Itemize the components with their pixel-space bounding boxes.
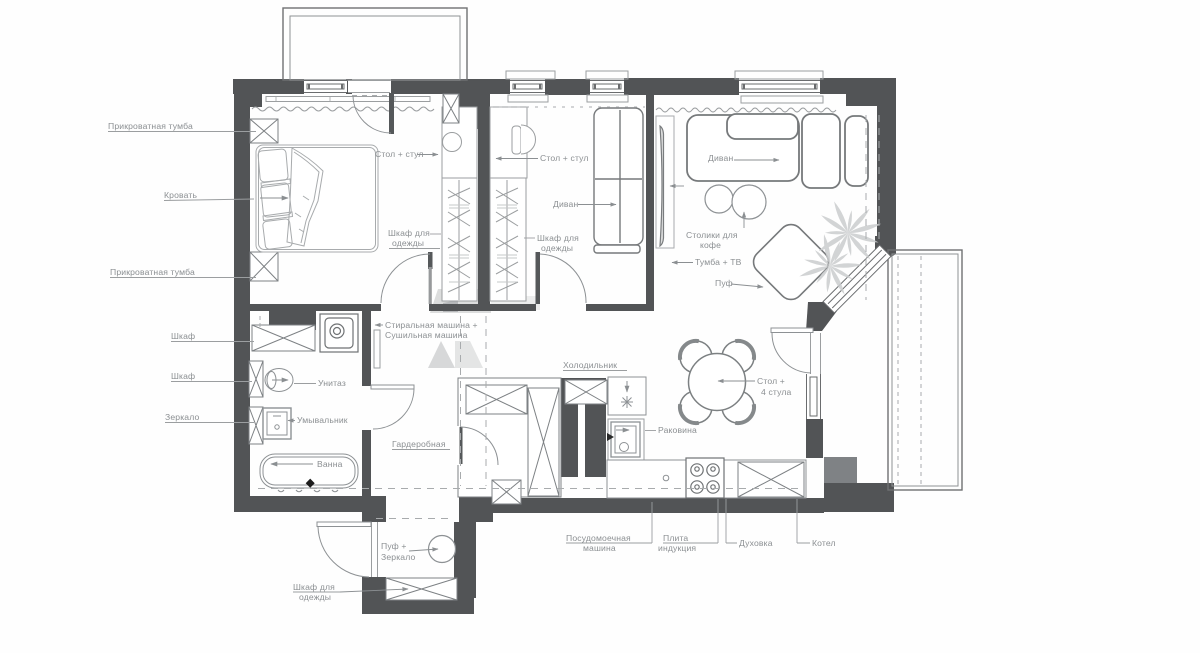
svg-text:индукция: индукция	[658, 543, 696, 553]
svg-text:Сушильная машина: Сушильная машина	[385, 330, 468, 340]
svg-text:Гардеробная: Гардеробная	[392, 439, 446, 449]
svg-text:кофе: кофе	[700, 240, 721, 250]
svg-text:Ванна: Ванна	[317, 459, 343, 469]
svg-text:Зеркало: Зеркало	[381, 552, 415, 562]
svg-text:Прикроватная тумба: Прикроватная тумба	[108, 121, 193, 131]
svg-text:Стол +: Стол +	[757, 376, 785, 386]
svg-text:Котел: Котел	[812, 538, 836, 548]
svg-text:Столики для: Столики для	[686, 230, 738, 240]
svg-text:одежды: одежды	[392, 238, 424, 248]
svg-text:4 стула: 4 стула	[761, 387, 792, 397]
svg-text:Стол + стул: Стол + стул	[375, 149, 424, 159]
svg-text:Шкаф для: Шкаф для	[293, 582, 335, 592]
svg-text:одежды: одежды	[299, 592, 331, 602]
svg-text:Зеркало: Зеркало	[165, 412, 199, 422]
svg-text:Кровать: Кровать	[164, 190, 197, 200]
svg-text:Плита: Плита	[663, 533, 688, 543]
svg-text:Умывальник: Умывальник	[297, 415, 348, 425]
svg-text:Шкаф: Шкаф	[171, 331, 195, 341]
svg-text:Унитаз: Унитаз	[318, 378, 346, 388]
svg-text:Посудомоечная: Посудомоечная	[566, 533, 631, 543]
svg-text:Шкаф: Шкаф	[171, 371, 195, 381]
svg-text:Раковина: Раковина	[658, 425, 697, 435]
svg-text:Тумба + ТВ: Тумба + ТВ	[695, 257, 742, 267]
svg-text:Диван: Диван	[708, 153, 733, 163]
svg-text:одежды: одежды	[541, 243, 573, 253]
svg-text:машина: машина	[583, 543, 616, 553]
svg-text:Духовка: Духовка	[739, 538, 773, 548]
svg-text:Стиральная машина +: Стиральная машина +	[385, 320, 478, 330]
svg-text:Холодильник: Холодильник	[563, 360, 617, 370]
svg-text:Пуф +: Пуф +	[381, 541, 407, 551]
svg-text:Шкаф для: Шкаф для	[388, 228, 430, 238]
svg-text:Стол + стул: Стол + стул	[540, 153, 589, 163]
svg-text:Шкаф для: Шкаф для	[537, 233, 579, 243]
svg-text:Диван: Диван	[553, 199, 578, 209]
svg-text:Пуф: Пуф	[715, 278, 733, 288]
svg-text:Прикроватная тумба: Прикроватная тумба	[110, 267, 195, 277]
